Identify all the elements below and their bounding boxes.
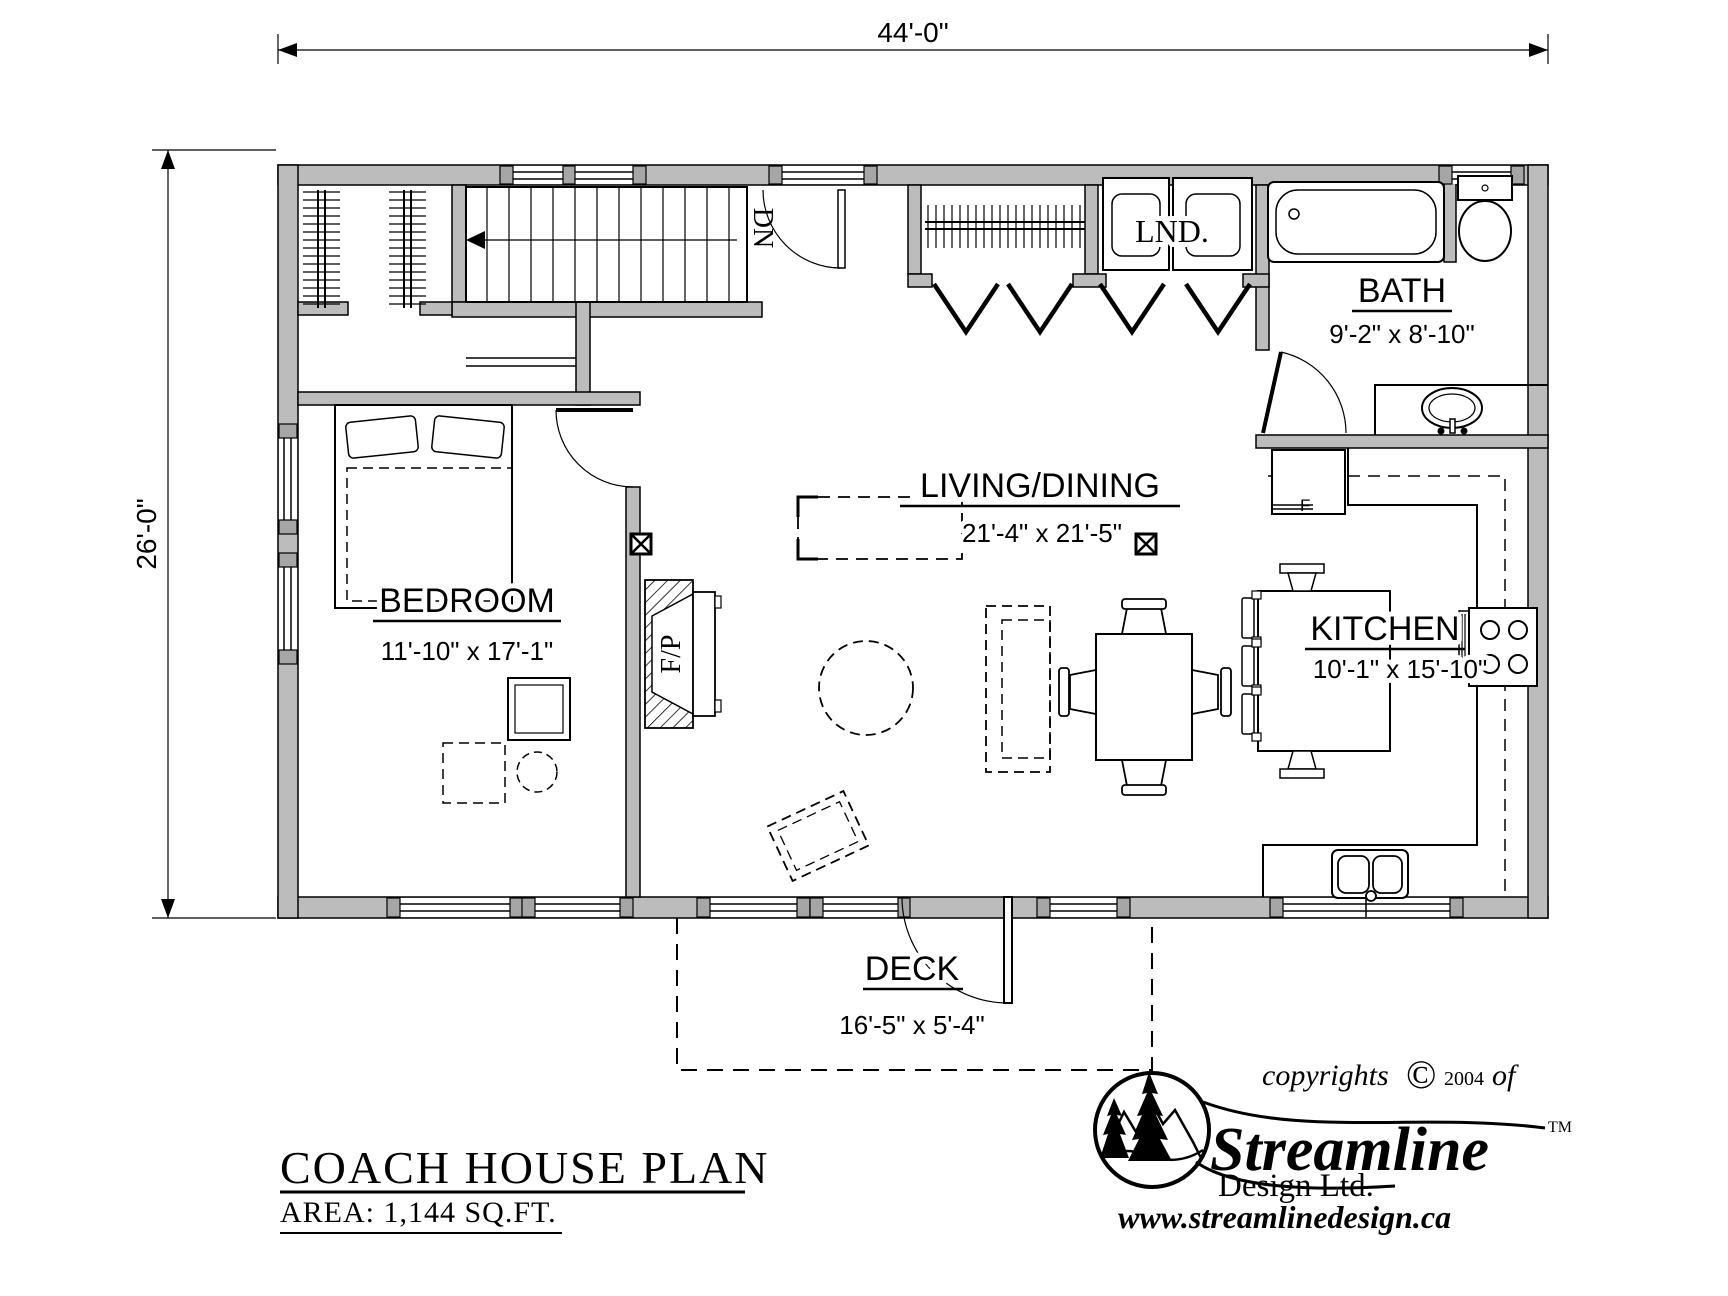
- rotated-chair-dashed: [767, 791, 868, 881]
- window-kitchen-bottom: [1270, 898, 1463, 917]
- window-bedroom-bottom-2: [522, 898, 633, 917]
- window-living-bottom-1: [697, 898, 810, 917]
- bifold-doors: [934, 284, 1250, 332]
- dining-chair-bottom: [1122, 760, 1166, 786]
- dashed-table: [443, 743, 505, 803]
- kitchen-sink: [1332, 850, 1408, 901]
- copyright-suffix: of: [1492, 1059, 1519, 1092]
- logo-trademark: TM: [1548, 1119, 1572, 1136]
- laundry-label: LND.: [1135, 213, 1209, 249]
- kitchen-size: 10'-1" x 15'-10": [1313, 654, 1487, 684]
- bedroom-door: [556, 410, 633, 487]
- deck-outline: [677, 918, 1152, 1070]
- window-bedroom-bottom-1: [387, 898, 523, 917]
- copyright-prefix: copyrights: [1262, 1059, 1389, 1092]
- stair-outline: [466, 187, 747, 302]
- fireplace: F/P: [645, 580, 721, 728]
- exterior-wall-left: [278, 165, 298, 918]
- logo-pine-tree-small: [1100, 1098, 1129, 1158]
- burner: [1481, 621, 1499, 639]
- bedroom-closet-rod-2: [389, 190, 426, 308]
- stair-wall-left: [452, 185, 466, 302]
- hall-closet-wall-mid: [1085, 185, 1098, 274]
- hearth: [693, 592, 715, 716]
- hall-closet-rod: [925, 205, 1085, 248]
- bathroom-door: [1263, 352, 1346, 433]
- dining-table-set: [1059, 599, 1231, 795]
- staircase: DN: [466, 187, 778, 302]
- window-living-bottom-2: [810, 898, 910, 917]
- dining-table: [1096, 634, 1192, 760]
- bedroom-label: BEDROOM: [379, 582, 555, 620]
- bedroom-size: 11'-10" x 17'-1": [381, 636, 553, 666]
- bathtub: [1268, 182, 1444, 262]
- fridge: F: [1272, 450, 1345, 515]
- bedroom-closet-rod-1: [303, 190, 340, 308]
- left-dim-arrow-bottom: [161, 899, 175, 918]
- window-bedroom-left-2: [279, 553, 297, 664]
- bifold-closet-right: [1008, 284, 1072, 332]
- logo-website: www.streamlinedesign.ca: [1118, 1199, 1451, 1235]
- deck-label: DECK: [865, 950, 960, 988]
- floor-plan-sheet: 44'-0" 26'-0": [0, 0, 1728, 1296]
- round-table-dashed: [819, 641, 913, 735]
- window-top-stairs: [500, 166, 646, 184]
- copyright-symbol: ©: [1406, 1052, 1436, 1097]
- living-dining-size: 21'-4" x 21'-5": [962, 518, 1122, 548]
- window-living-bottom-3: [1037, 898, 1130, 917]
- top-dim-arrow-right: [1529, 43, 1548, 57]
- deck-size: 16'-5" x 5'-4": [839, 1010, 984, 1040]
- nightstand: [508, 678, 570, 740]
- exterior-wall-right: [1528, 165, 1548, 918]
- bath-label: BATH: [1358, 272, 1446, 310]
- dining-chair-left: [1070, 670, 1096, 714]
- fireplace-label: F/P: [656, 635, 687, 674]
- living-furniture: F/P: [631, 497, 1231, 881]
- living-dining-label: LIVING/DINING: [920, 467, 1160, 505]
- sofa-dashed: [986, 606, 1050, 772]
- bifold-closet-left: [934, 284, 998, 332]
- bed: [335, 405, 512, 608]
- left-dim-arrow-top: [161, 150, 175, 169]
- bath-vanity: [1375, 385, 1548, 435]
- top-dim-arrow-left: [278, 43, 297, 57]
- bifold-laundry-right: [1186, 284, 1250, 332]
- closet-stub-1: [908, 274, 932, 287]
- kitchen-label: KITCHEN: [1310, 610, 1459, 648]
- burner: [1509, 655, 1527, 673]
- toilet: [1458, 176, 1512, 261]
- bifold-laundry-left: [1100, 284, 1164, 332]
- sheet-area: AREA: 1,144 SQ.FT.: [280, 1196, 557, 1229]
- dining-chair-right: [1192, 670, 1218, 714]
- tub-wall: [1444, 182, 1456, 262]
- dashed-stool: [517, 752, 557, 792]
- logo-pine-tree-large: [1128, 1072, 1172, 1161]
- title-block: COACH HOUSE PLAN AREA: 1,144 SQ.FT.: [280, 1142, 769, 1233]
- bath-kitchen-wall: [1256, 435, 1548, 448]
- left-dimension-line: [152, 150, 276, 918]
- post-symbol-right: [1136, 534, 1156, 554]
- window-bedroom-left-1: [279, 424, 297, 534]
- bedroom-wall-top: [298, 392, 640, 405]
- window-top-hall: [769, 166, 877, 184]
- floor-plan-drawing: 44'-0" 26'-0": [0, 0, 1728, 1296]
- fridge-label: F: [1300, 496, 1310, 515]
- bath-size: 9'-2" x 8'-10": [1329, 319, 1474, 349]
- overall-width-dimension: 44'-0": [877, 17, 948, 48]
- pillow: [345, 415, 418, 458]
- understair-closet-shelf: [466, 358, 576, 366]
- dining-chair-top: [1122, 608, 1166, 634]
- overall-height-dimension: 26'-0": [131, 498, 162, 569]
- understair-closet-wall: [576, 302, 590, 405]
- pillow: [431, 415, 504, 458]
- post-symbol-left: [631, 534, 651, 554]
- hall-closet-wall-left: [908, 185, 921, 274]
- bath-faucet: [1450, 419, 1455, 433]
- burner: [1509, 621, 1527, 639]
- streamline-logo: copyrights © 2004 of Streamline TM Desig…: [1095, 1052, 1572, 1235]
- copyright-year: 2004: [1444, 1068, 1484, 1090]
- sheet-title: COACH HOUSE PLAN: [280, 1142, 769, 1193]
- stair-wall-bottom: [452, 302, 762, 317]
